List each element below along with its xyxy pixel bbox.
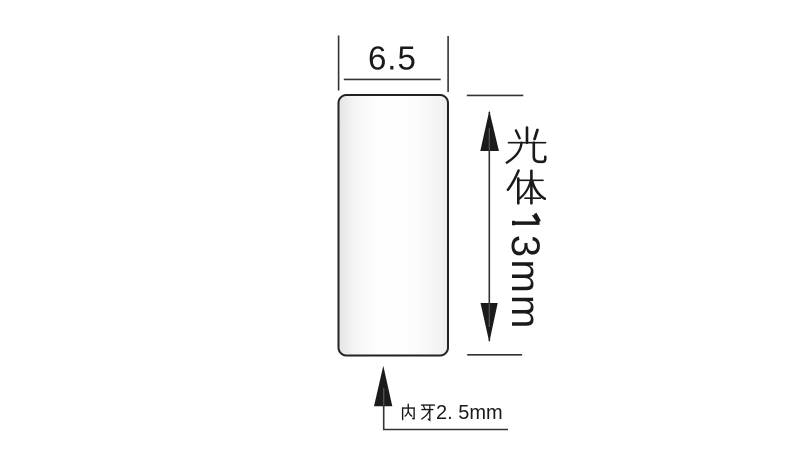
svg-text:6.5: 6.5 — [368, 40, 417, 77]
svg-text:1: 1 — [503, 211, 547, 233]
svg-text:m: m — [503, 259, 547, 292]
svg-text:2. 5mm: 2. 5mm — [436, 402, 503, 424]
svg-text:m: m — [503, 295, 547, 328]
svg-text:3: 3 — [503, 235, 547, 257]
